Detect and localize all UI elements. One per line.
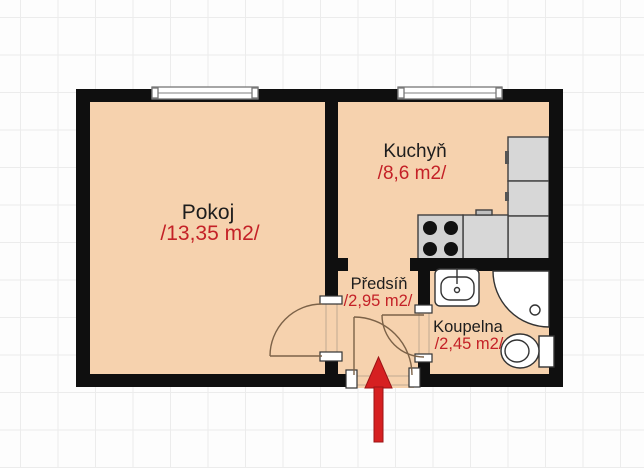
basin-drain [455, 288, 460, 293]
jamb [320, 352, 342, 361]
toilet-icon [501, 334, 554, 368]
label-kuchyn: Kuchyň [383, 141, 446, 162]
burner-icon [423, 221, 437, 235]
floorplan-canvas: Pokoj /13,35 m2/ Kuchyň /8,6 m2/ Předsíň… [0, 0, 644, 468]
kitchen-cabinet-upper [508, 137, 549, 181]
burner-icon [423, 242, 437, 256]
floorplan: Pokoj /13,35 m2/ Kuchyň /8,6 m2/ Předsíň… [0, 0, 644, 468]
counter-handle [476, 210, 492, 215]
wall-kitchen-stub [325, 258, 348, 271]
area-predsin: /2,95 m2/ [344, 292, 413, 310]
area-kuchyn: /8,6 m2/ [378, 163, 447, 184]
area-pokoj: /13,35 m2/ [160, 222, 259, 245]
window-end [496, 88, 502, 98]
window-kuchyn-icon [398, 87, 502, 99]
wall-bath-left-upper [418, 258, 430, 305]
washbasin-icon [435, 268, 479, 306]
window-pokoj-icon [152, 87, 258, 99]
kitchen-counter-corner [508, 216, 549, 261]
label-pokoj: Pokoj [182, 201, 235, 224]
burner-icon [444, 242, 458, 256]
window-end [152, 88, 158, 98]
label-predsin: Předsíň [351, 275, 408, 293]
kitchen-counter [463, 215, 508, 261]
label-koupelna: Koupelna [433, 318, 504, 336]
jamb [346, 370, 357, 388]
cabinet-handle [505, 151, 509, 164]
wall-left [76, 89, 90, 387]
kitchen-cabinet-lower [508, 181, 549, 216]
wall-bottom-left [76, 374, 349, 387]
wall-pokoj-divider-low [325, 361, 338, 375]
arrow-shaft [374, 387, 383, 442]
window-end [398, 88, 404, 98]
stove [418, 215, 463, 261]
jamb [409, 368, 420, 387]
burner-icon [444, 221, 458, 235]
wall-kitchen-bath [410, 258, 549, 271]
jamb [415, 305, 432, 313]
toilet-tank [539, 336, 554, 367]
area-koupelna: /2,45 m2/ [435, 335, 504, 353]
jamb [320, 296, 342, 304]
cabinet-handle [505, 192, 509, 201]
shower-drain [530, 305, 540, 315]
toilet-bowl-inner [505, 340, 529, 362]
jamb [415, 354, 432, 362]
window-end [252, 88, 258, 98]
wall-bottom-right [414, 374, 563, 387]
